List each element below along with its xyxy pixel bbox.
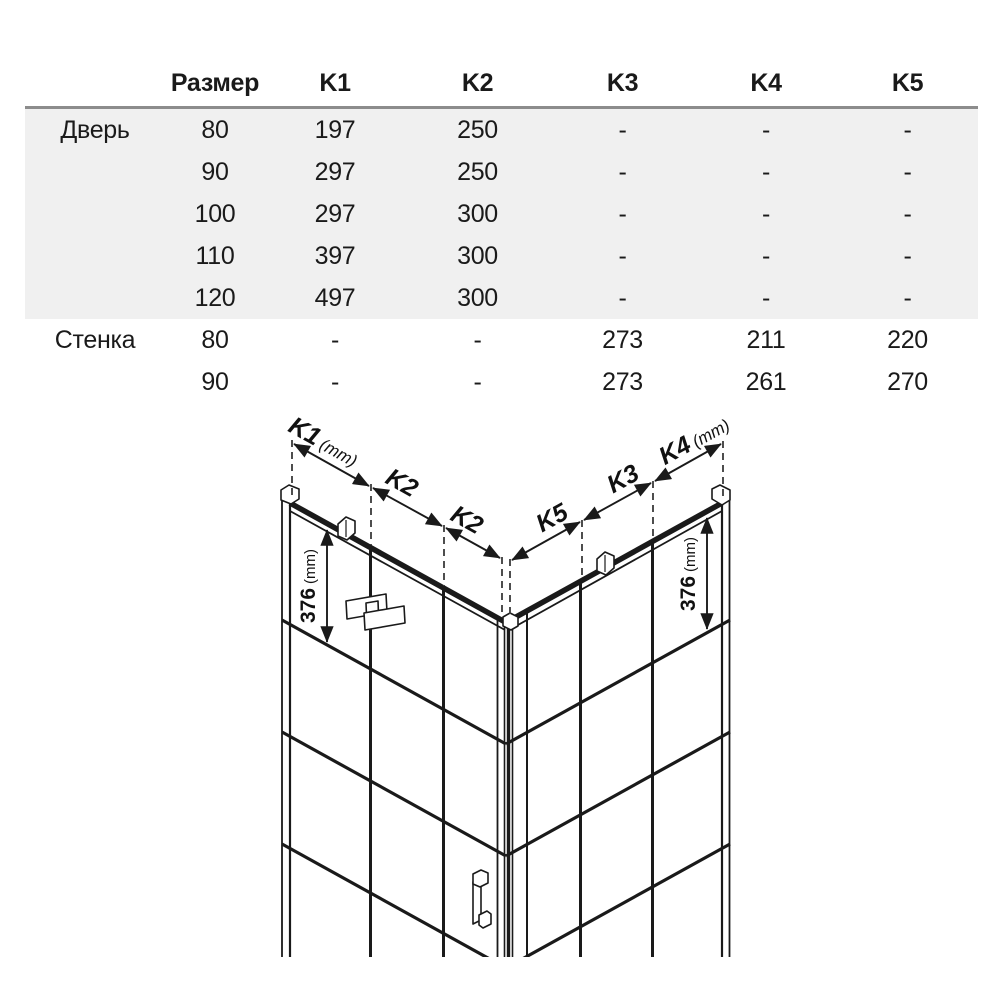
corner-post bbox=[505, 622, 513, 957]
dim-label-k5: K5 bbox=[531, 497, 573, 538]
shower-corner-diagram: K1(mm) K2 K2 K5 K3 K4(mm) 376(mm) 376(mm… bbox=[0, 0, 1001, 1001]
corner-post-cap bbox=[503, 613, 518, 630]
door-guide-plates bbox=[346, 594, 405, 630]
dim-label-k2a: K2 bbox=[381, 463, 423, 503]
right-wall-profile-cap bbox=[712, 485, 730, 505]
right-roller-bracket bbox=[597, 552, 614, 575]
height-dimension-left: 376(mm) bbox=[297, 530, 327, 642]
dim-label-k2b: K2 bbox=[446, 500, 488, 540]
glass-panels bbox=[282, 497, 730, 968]
dim-label-k3: K3 bbox=[602, 459, 644, 499]
dimension-chain-left: K1(mm) K2 K2 bbox=[284, 411, 500, 558]
extension-lines bbox=[292, 440, 723, 619]
dim-label-376-right: 376(mm) bbox=[677, 537, 700, 611]
door-handle bbox=[473, 870, 491, 928]
dimension-chain-right: K5 K3 K4(mm) bbox=[512, 409, 734, 560]
dim-label-k1: K1(mm) bbox=[284, 411, 364, 472]
spec-sheet: Размер K1 K2 K3 K4 K5 Дверь 80 197 250 -… bbox=[0, 0, 1001, 1001]
dim-label-k4: K4(mm) bbox=[654, 409, 734, 470]
dim-label-376-left: 376(mm) bbox=[297, 549, 320, 623]
left-wall-profile-cap bbox=[281, 485, 299, 504]
